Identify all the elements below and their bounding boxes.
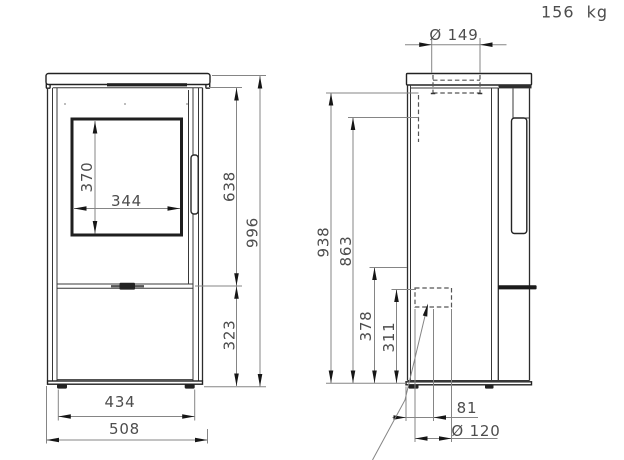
side-top-plate (407, 74, 532, 86)
stove-side-view (406, 74, 537, 389)
dim-air-inlet-offset-label: 81 (457, 399, 478, 417)
air-inlet-leader-arrow (423, 304, 428, 317)
side-door-ledge (498, 285, 537, 289)
front-latch (120, 283, 136, 290)
front-top-plate (46, 74, 210, 85)
stove-front-view (46, 74, 210, 389)
dim-air-inlet-height-label: 311 (380, 321, 398, 352)
side-front-foot (485, 385, 494, 389)
air-inlet-hidden-outline (415, 288, 452, 307)
technical-drawing-page: 370 344 638 323 996 434 (0, 0, 624, 460)
front-door-handle (191, 155, 198, 214)
dim-flue-diameter-label: Ø 149 (429, 26, 478, 44)
dim-air-inlet-top-height-label: 378 (357, 310, 375, 341)
front-left-foot (57, 384, 67, 388)
dim-air-inlet-diameter-label: Ø 120 (451, 422, 500, 440)
dim-glass-width-label: 344 (111, 192, 142, 210)
dim-glass-height-label: 370 (78, 161, 96, 192)
dim-door-section-height-label: 638 (220, 171, 238, 202)
dim-overall-width-label: 508 (109, 420, 140, 438)
side-base-plate (406, 382, 532, 385)
dim-rear-flue-height-label: 863 (337, 235, 355, 266)
front-right-foot (185, 384, 195, 388)
side-back-foot (409, 385, 419, 389)
front-base-plate (48, 381, 203, 384)
stove-dimension-drawing: 370 344 638 323 996 434 (0, 0, 624, 460)
dim-rear-flue-top-height-label: 938 (314, 226, 332, 257)
dim-feet-spacing-label: 434 (104, 393, 135, 411)
dim-base-section-height-label: 323 (220, 319, 238, 350)
front-vent-slot (107, 83, 187, 86)
side-door-groove (512, 118, 527, 234)
dim-overall-height-label: 996 (243, 217, 261, 248)
weight-label: 156 kg (541, 3, 608, 22)
